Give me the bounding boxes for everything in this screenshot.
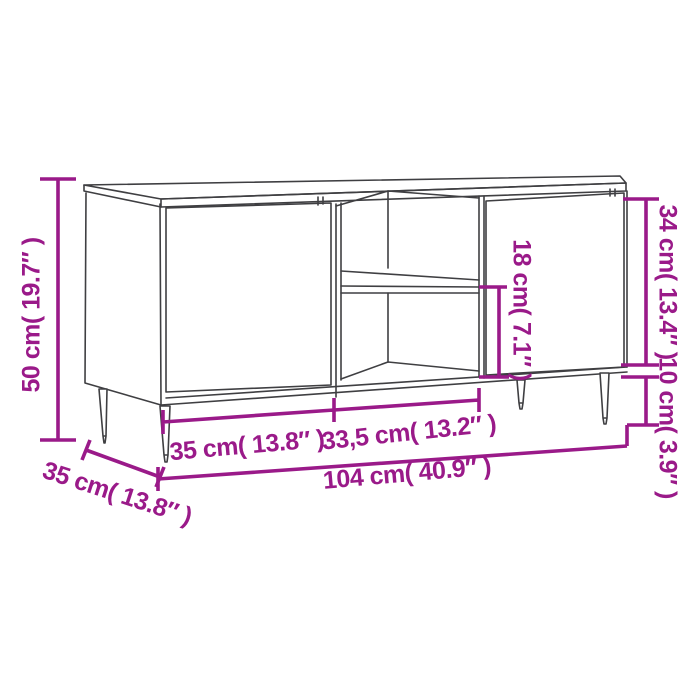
dim-height-label: 50 cm( 19.7″ ) [20,237,45,392]
back-left-leg [99,389,107,443]
cabinet-left-side [85,193,161,405]
right-door-handle [610,189,615,196]
dimension-diagram: 50 cm( 19.7″ ) 35 cm( 13.8″ ) 35 cm( 13.… [0,0,700,700]
middle-dividers [336,196,484,397]
dim-shelf-height-label: 18 cm( 7.1″ ) [509,239,534,381]
dim-leg-height-label: 10 cm( 3.9″ ) [655,357,680,499]
left-door [166,203,331,392]
open-compartment [336,191,479,379]
dim-carcass-height-label: 34 cm( 13.4″ ) [655,204,680,359]
front-right-leg [600,373,609,424]
cabinet-top-panel [84,176,626,207]
cabinet-outline [84,176,627,462]
cabinet-bottom-panel [161,367,627,405]
back-right-leg [517,380,525,409]
cabinet-line-art [0,0,700,700]
middle-shelf [341,271,479,293]
